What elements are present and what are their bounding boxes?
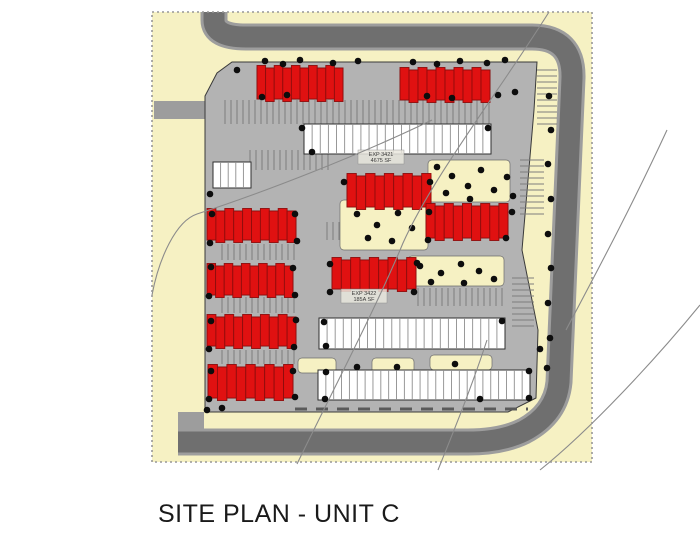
- building-white: [213, 162, 251, 188]
- building-red-unit: [347, 174, 356, 208]
- tree: [219, 405, 226, 412]
- building-red-unit: [351, 258, 360, 290]
- tree: [411, 289, 418, 296]
- building-red-unit: [274, 66, 283, 100]
- tree: [208, 318, 215, 325]
- building-red-unit: [499, 204, 508, 239]
- building-red-unit: [217, 367, 226, 401]
- tree: [292, 292, 299, 299]
- building-red-unit: [332, 258, 341, 290]
- tree: [461, 280, 468, 287]
- tree: [395, 210, 402, 217]
- tree: [323, 343, 330, 350]
- tree: [434, 164, 441, 171]
- tree: [526, 395, 533, 402]
- tree: [478, 167, 485, 174]
- building-red-unit: [462, 204, 471, 239]
- building-red-unit: [454, 68, 463, 101]
- tree: [208, 264, 215, 271]
- building-red-unit: [422, 174, 431, 208]
- building-red-unit: [444, 204, 453, 239]
- tree: [484, 60, 491, 67]
- tree: [365, 235, 372, 242]
- building-red-unit: [278, 315, 287, 347]
- courtyard: [430, 355, 492, 370]
- tree: [424, 93, 431, 100]
- tree: [293, 317, 300, 324]
- building-red-unit: [403, 174, 412, 208]
- tree: [485, 125, 492, 132]
- tree: [206, 293, 213, 300]
- tree: [389, 238, 396, 245]
- building-red-unit: [266, 68, 275, 102]
- tree: [545, 231, 552, 238]
- tree: [546, 93, 553, 100]
- plan-caption: SITE PLAN - UNIT C: [158, 500, 400, 529]
- building-red-unit: [481, 70, 490, 103]
- building-red-unit: [384, 174, 393, 208]
- building-red-unit: [216, 266, 225, 298]
- tree: [491, 276, 498, 283]
- building-red-unit: [409, 70, 418, 103]
- building-red-unit: [472, 68, 481, 101]
- building-red-unit: [291, 66, 300, 100]
- building-red-unit: [259, 264, 268, 296]
- driveway-stub: [154, 101, 206, 119]
- tree: [322, 396, 329, 403]
- building-red-unit: [326, 66, 335, 100]
- tree: [449, 95, 456, 102]
- tree: [234, 67, 241, 74]
- tree: [290, 265, 297, 272]
- building-red-unit: [278, 209, 287, 241]
- tree: [427, 179, 434, 186]
- tree: [290, 368, 297, 375]
- tree: [512, 89, 519, 96]
- tree: [291, 344, 298, 351]
- building-red-unit: [276, 264, 285, 296]
- building-red-unit: [412, 176, 421, 210]
- tree: [355, 58, 362, 65]
- building-red-unit: [435, 206, 444, 241]
- tree: [537, 346, 544, 353]
- building-red-unit: [481, 204, 490, 239]
- tree: [438, 270, 445, 277]
- building-red-unit: [375, 176, 384, 210]
- building-red-unit: [216, 211, 225, 243]
- plan-label: EXP 34214675 SF: [369, 152, 394, 164]
- tree: [544, 365, 551, 372]
- building-red-unit: [453, 206, 462, 241]
- tree: [510, 193, 517, 200]
- building-white: [304, 124, 491, 154]
- tree: [330, 60, 337, 67]
- tree: [410, 59, 417, 66]
- tree: [297, 57, 304, 64]
- building-red-unit: [472, 206, 481, 241]
- building-white: [319, 318, 505, 349]
- tree: [545, 161, 552, 168]
- building-red-unit: [334, 68, 343, 102]
- tree: [341, 179, 348, 186]
- building-red-unit: [356, 176, 365, 210]
- tree: [548, 196, 555, 203]
- building-red-unit: [234, 317, 243, 349]
- tree: [476, 268, 483, 275]
- tree: [284, 92, 291, 99]
- building-red-unit: [227, 365, 236, 399]
- tree: [394, 364, 401, 371]
- tree: [417, 263, 424, 270]
- tree: [503, 235, 510, 242]
- tree: [206, 346, 213, 353]
- building-red-unit: [243, 315, 252, 347]
- tree: [548, 127, 555, 134]
- tree: [491, 187, 498, 194]
- tree: [465, 183, 472, 190]
- site-plan-figure: EXP 34214675 SFEXP 3422185A SF SITE PLAN…: [0, 0, 700, 550]
- tree: [434, 61, 441, 68]
- courtyard: [428, 160, 510, 202]
- building-red-unit: [269, 317, 278, 349]
- tree: [206, 396, 213, 403]
- tree: [526, 368, 533, 375]
- tree: [204, 407, 211, 414]
- tree: [458, 261, 465, 268]
- building-red-unit: [267, 266, 276, 298]
- building-red-unit: [400, 68, 409, 101]
- building-red-unit: [234, 211, 243, 243]
- tree: [499, 318, 506, 325]
- building-red-unit: [233, 266, 242, 298]
- plan-label: EXP 3422185A SF: [352, 291, 377, 303]
- building-red-unit: [216, 317, 225, 349]
- tree: [259, 94, 266, 101]
- tree: [309, 149, 316, 156]
- tree: [207, 191, 214, 198]
- building-red-unit: [490, 206, 499, 241]
- building-red-unit: [250, 266, 259, 298]
- building-red-unit: [369, 258, 378, 290]
- tree: [425, 237, 432, 244]
- building-red-unit: [426, 204, 435, 239]
- tree: [374, 222, 381, 229]
- building-red-unit: [341, 260, 350, 292]
- tree: [292, 211, 299, 218]
- building-red-unit: [252, 317, 261, 349]
- tree: [292, 394, 299, 401]
- tree: [457, 58, 464, 65]
- building-red-unit: [436, 68, 445, 101]
- tree: [449, 173, 456, 180]
- building-red-unit: [274, 367, 283, 401]
- building-red-unit: [360, 260, 369, 292]
- building-red-unit: [300, 68, 309, 102]
- tree: [504, 174, 511, 181]
- building-red-unit: [255, 367, 264, 401]
- tree: [547, 335, 554, 342]
- building-red-unit: [366, 174, 375, 208]
- building-red-unit: [243, 209, 252, 241]
- building-red-unit: [265, 365, 274, 399]
- tree: [209, 211, 216, 218]
- tree: [452, 361, 459, 368]
- building-red-unit: [246, 365, 255, 399]
- building-red-unit: [225, 315, 234, 347]
- building-red-unit: [236, 367, 245, 401]
- building-red-unit: [260, 209, 269, 241]
- building-red-unit: [394, 176, 403, 210]
- tree: [545, 300, 552, 307]
- building-red-unit: [252, 211, 261, 243]
- tree: [299, 125, 306, 132]
- tree: [467, 196, 474, 203]
- tree: [208, 368, 215, 375]
- building-red-unit: [225, 209, 234, 241]
- building-red-unit: [224, 264, 233, 296]
- tree: [207, 240, 214, 247]
- building-red-unit: [463, 70, 472, 103]
- tree: [426, 209, 433, 216]
- tree: [428, 279, 435, 286]
- building-red-unit: [309, 66, 318, 100]
- building-red-unit: [317, 68, 326, 102]
- tree: [294, 238, 301, 245]
- building-red-unit: [269, 211, 278, 243]
- tree: [443, 190, 450, 197]
- tree: [321, 319, 328, 326]
- tree: [280, 61, 287, 68]
- tree: [509, 209, 516, 216]
- tree: [327, 289, 334, 296]
- tree: [548, 265, 555, 272]
- tree: [262, 58, 269, 65]
- tree: [323, 369, 330, 376]
- tree: [477, 396, 484, 403]
- site-plan-drawing: EXP 34214675 SFEXP 3422185A SF: [0, 0, 700, 550]
- building-red-unit: [260, 315, 269, 347]
- tree: [327, 261, 334, 268]
- building-red-unit: [397, 260, 406, 292]
- tree: [354, 211, 361, 218]
- tree: [354, 364, 361, 371]
- tree: [502, 57, 509, 64]
- building-red-unit: [241, 264, 250, 296]
- courtyard: [408, 256, 504, 286]
